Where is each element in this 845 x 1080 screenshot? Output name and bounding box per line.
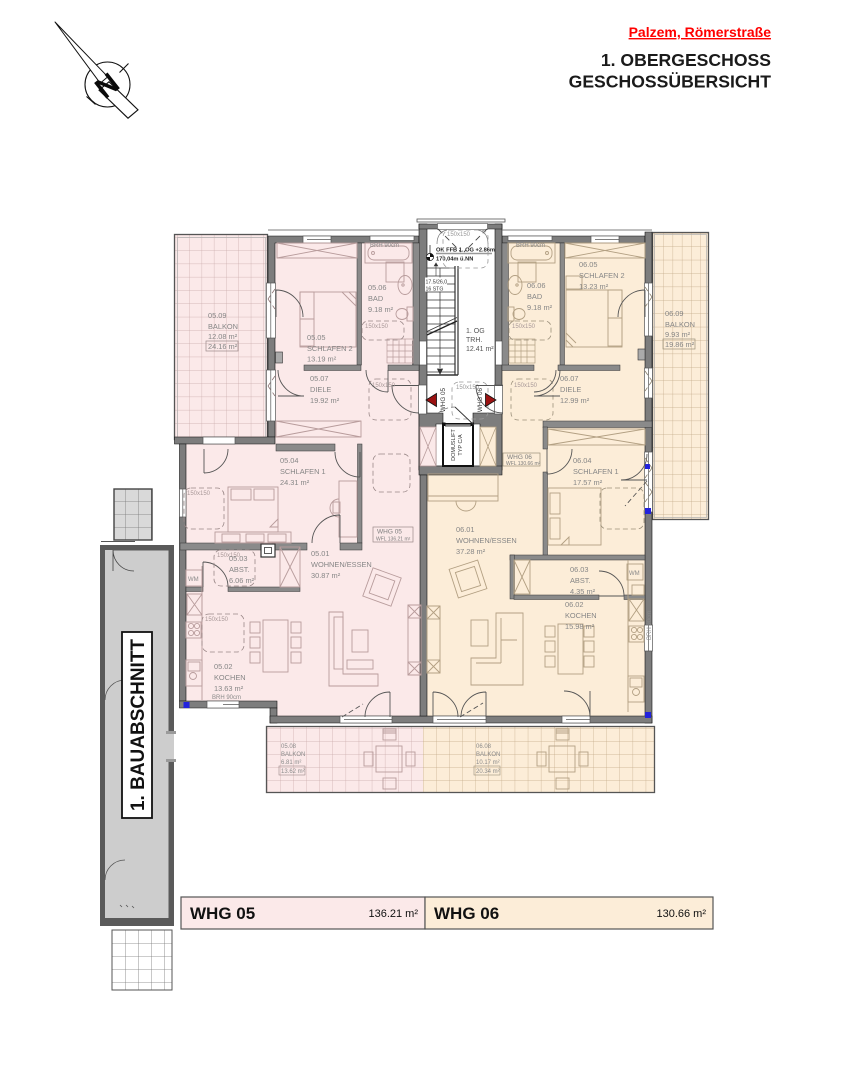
svg-text:150x150: 150x150	[365, 324, 389, 330]
svg-text:BRH 90cm: BRH 90cm	[647, 611, 653, 640]
svg-text:05.08: 05.08	[281, 744, 297, 750]
svg-text:16 STG: 16 STG	[426, 287, 444, 293]
svg-text:WHG 06: WHG 06	[477, 387, 484, 412]
svg-text:170,04m ü.NN: 170,04m ü.NN	[436, 257, 473, 263]
svg-text:1. BAUABSCHNITT: 1. BAUABSCHNITT	[128, 639, 149, 811]
svg-text:WFL 136.21 m²: WFL 136.21 m²	[376, 537, 411, 543]
svg-text:ABST.: ABST.	[229, 565, 250, 574]
svg-text:12.08 m²: 12.08 m²	[208, 332, 238, 341]
svg-text:TRH.: TRH.	[466, 337, 482, 344]
svg-text:GESCHOSSÜBERSICHT: GESCHOSSÜBERSICHT	[569, 72, 772, 92]
svg-text:WOHNEN/ESSEN: WOHNEN/ESSEN	[456, 536, 517, 545]
svg-text:05.05: 05.05	[307, 333, 326, 342]
svg-text:17.5/26,0: 17.5/26,0	[426, 280, 448, 286]
svg-text:130.66 m²: 130.66 m²	[656, 908, 706, 920]
svg-text:6.81 m²: 6.81 m²	[281, 760, 301, 766]
svg-text:12.99 m²: 12.99 m²	[560, 396, 590, 405]
svg-text:WM: WM	[188, 577, 199, 583]
svg-text:9.93 m²: 9.93 m²	[665, 330, 691, 339]
svg-text:BALKON: BALKON	[665, 320, 695, 329]
svg-text:06.04: 06.04	[573, 456, 592, 465]
svg-text:06.07: 06.07	[560, 374, 579, 383]
svg-text:12.41 m²: 12.41 m²	[466, 346, 494, 353]
svg-text:ABST.: ABST.	[570, 576, 591, 585]
svg-text:19.92 m²: 19.92 m²	[310, 396, 340, 405]
svg-text:9.18 m²: 9.18 m²	[368, 305, 394, 314]
svg-text:TYP C/A: TYP C/A	[458, 434, 464, 456]
svg-text:05.07: 05.07	[310, 374, 329, 383]
svg-text:DIELE: DIELE	[560, 385, 581, 394]
svg-text:17.57 m²: 17.57 m²	[573, 478, 603, 487]
svg-text:4.35 m²: 4.35 m²	[570, 587, 596, 596]
svg-text:13.19 m²: 13.19 m²	[307, 355, 337, 364]
svg-text:150x150: 150x150	[447, 232, 471, 238]
svg-text:06.09: 06.09	[665, 309, 684, 318]
svg-text:9.18 m²: 9.18 m²	[527, 303, 553, 312]
svg-text:6.06 m²: 6.06 m²	[229, 576, 255, 585]
svg-text:13.62 m²: 13.62 m²	[281, 769, 305, 775]
svg-text:WOHNEN/ESSEN: WOHNEN/ESSEN	[311, 560, 372, 569]
svg-text:06.02: 06.02	[565, 600, 584, 609]
svg-text:19.86 m²: 19.86 m²	[665, 340, 695, 349]
svg-text:05.04: 05.04	[280, 456, 299, 465]
svg-text:BALKON: BALKON	[476, 752, 500, 758]
svg-text:05.02: 05.02	[214, 662, 233, 671]
svg-text:WHG 05: WHG 05	[440, 387, 447, 412]
svg-text:BAD: BAD	[527, 292, 542, 301]
svg-text:BRH 90cm: BRH 90cm	[516, 243, 545, 249]
svg-text:20.34 m²: 20.34 m²	[476, 769, 500, 775]
svg-text:1. OBERGESCHOSS: 1. OBERGESCHOSS	[601, 50, 771, 70]
svg-text:BALKON: BALKON	[281, 752, 305, 758]
svg-text:06.01: 06.01	[456, 525, 475, 534]
svg-text:BAD: BAD	[368, 294, 383, 303]
svg-text:150x150: 150x150	[187, 491, 211, 497]
svg-text:DIELE: DIELE	[310, 385, 331, 394]
svg-text:37.28 m²: 37.28 m²	[456, 547, 486, 556]
svg-text:KOCHEN: KOCHEN	[214, 673, 246, 682]
svg-text:SCHLAFEN 2: SCHLAFEN 2	[307, 344, 353, 353]
svg-text:BALKON: BALKON	[208, 322, 238, 331]
svg-text:WHG 06: WHG 06	[434, 904, 499, 923]
svg-text:SCHLAFEN 1: SCHLAFEN 1	[280, 467, 326, 476]
svg-text:05.03: 05.03	[229, 554, 248, 563]
svg-text:24.31 m²: 24.31 m²	[280, 478, 310, 487]
svg-text:05.01: 05.01	[311, 549, 330, 558]
svg-text:24.16 m²: 24.16 m²	[208, 342, 238, 351]
svg-text:SCHLAFEN 1: SCHLAFEN 1	[573, 467, 619, 476]
svg-text:15.98 m²: 15.98 m²	[565, 622, 595, 631]
svg-text:05.06: 05.06	[368, 283, 387, 292]
svg-text:30.87 m²: 30.87 m²	[311, 571, 341, 580]
svg-text:DOMUSLIFT: DOMUSLIFT	[451, 428, 457, 460]
svg-text:SCHLAFEN 2: SCHLAFEN 2	[579, 271, 625, 280]
svg-text:136.21 m²: 136.21 m²	[368, 908, 418, 920]
svg-text:150x150: 150x150	[512, 324, 536, 330]
svg-text:06.05: 06.05	[579, 260, 598, 269]
svg-text:13.63 m²: 13.63 m²	[214, 684, 244, 693]
svg-text:KOCHEN: KOCHEN	[565, 611, 597, 620]
svg-text:10.17 m²: 10.17 m²	[476, 760, 500, 766]
svg-text:06.06: 06.06	[527, 281, 546, 290]
svg-text:WHG 05: WHG 05	[377, 529, 402, 536]
svg-text:WM: WM	[629, 571, 640, 577]
svg-text:150x150: 150x150	[205, 617, 229, 623]
svg-text:05.09: 05.09	[208, 311, 227, 320]
svg-text:1. OG: 1. OG	[466, 328, 485, 335]
svg-text:WFL 130.66 m²: WFL 130.66 m²	[506, 461, 541, 467]
svg-text:WHG 05: WHG 05	[190, 904, 255, 923]
svg-text:Palzem, Römerstraße: Palzem, Römerstraße	[629, 24, 772, 40]
svg-text:BRH 90cm: BRH 90cm	[212, 695, 241, 701]
svg-text:BRH 90cm: BRH 90cm	[370, 243, 399, 249]
svg-text:06.08: 06.08	[476, 744, 492, 750]
svg-text:WHG 06: WHG 06	[507, 454, 532, 461]
svg-text:150x150: 150x150	[514, 383, 538, 389]
svg-text:06.03: 06.03	[570, 565, 589, 574]
svg-text:13.23 m²: 13.23 m²	[579, 282, 609, 291]
